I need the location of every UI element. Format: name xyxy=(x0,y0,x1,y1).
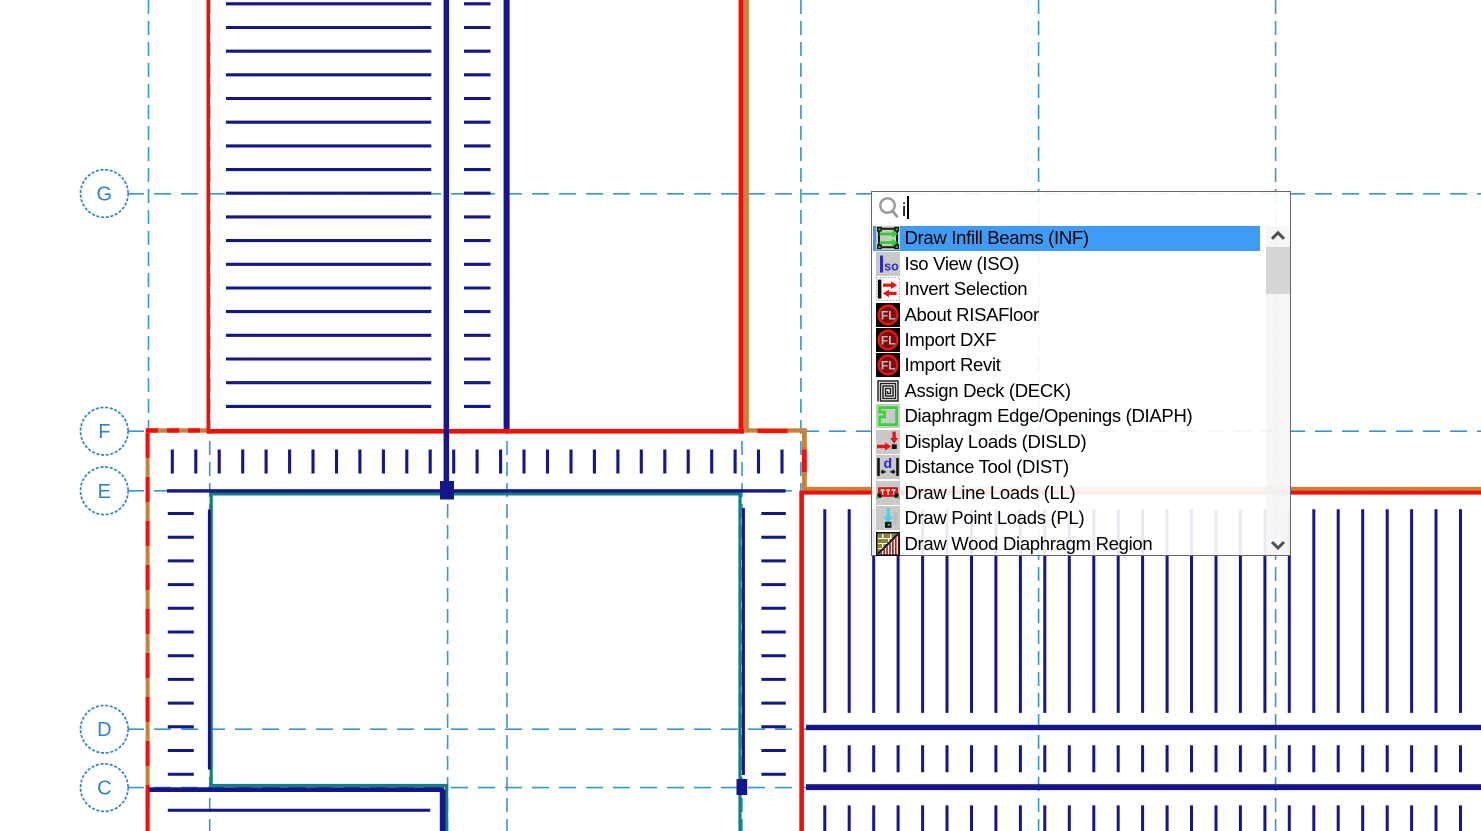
svg-text:so: so xyxy=(884,259,899,273)
svg-text:FL: FL xyxy=(880,334,895,348)
svg-text:G: G xyxy=(97,184,113,206)
svg-text:D: D xyxy=(97,719,111,741)
svg-text:E: E xyxy=(98,481,111,503)
svg-text:F: F xyxy=(98,421,110,443)
svg-text:FL: FL xyxy=(880,359,895,373)
svg-text:d: d xyxy=(883,455,892,471)
svg-text:C: C xyxy=(97,778,111,800)
svg-text:FL: FL xyxy=(880,308,895,322)
